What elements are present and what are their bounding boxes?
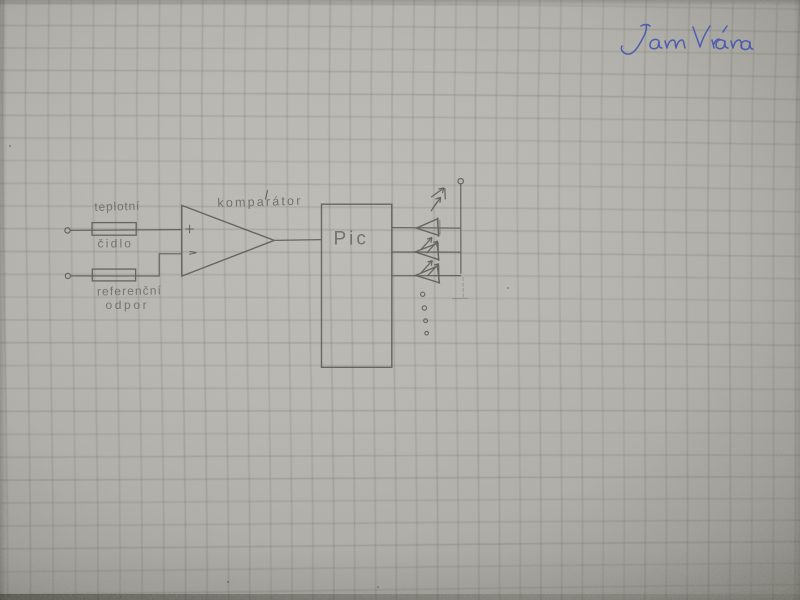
svg-text:teplotní: teplotní — [94, 199, 140, 214]
svg-text:komparátor: komparátor — [217, 194, 303, 210]
svg-text:odpor: odpor — [106, 298, 150, 312]
svg-text:referenční: referenční — [97, 283, 162, 298]
svg-text:Pic: Pic — [334, 229, 369, 250]
svg-text:čidlo: čidlo — [98, 237, 134, 251]
